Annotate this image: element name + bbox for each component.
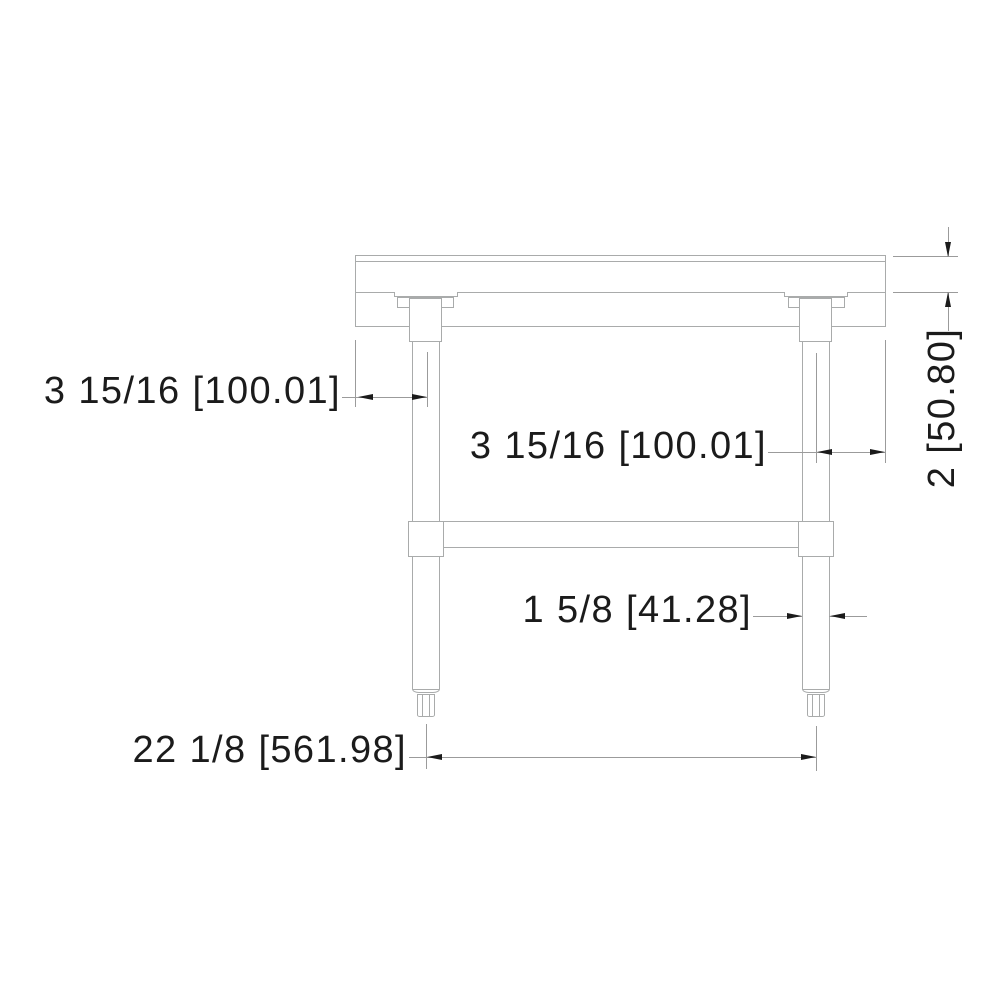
extension-line	[427, 352, 428, 407]
undershelf-bar	[444, 521, 798, 548]
left-undershelf-collar	[408, 521, 444, 557]
extension-line	[885, 340, 886, 463]
arrowhead-right-icon	[787, 613, 802, 619]
arrowhead-down-icon	[945, 242, 951, 257]
arrowhead-right-icon	[870, 449, 885, 455]
dimension-line	[409, 757, 816, 758]
extension-line	[426, 724, 427, 769]
extension-line	[816, 726, 817, 771]
arrowhead-up-icon	[945, 292, 951, 307]
dim-right-leg-offset-label: 3 15/16 [100.01]	[466, 424, 767, 468]
arrowhead-right-icon	[801, 754, 816, 760]
arrowhead-left-icon	[830, 613, 845, 619]
dim-left-leg-offset-label: 3 15/16 [100.01]	[40, 369, 341, 413]
right-foot-thread-line	[812, 695, 813, 716]
dim-leg-spacing-label: 22 1/8 [561.98]	[106, 728, 407, 772]
table-frame-line	[355, 292, 394, 293]
drawing-canvas: 3 15/16 [100.01] 3 15/16 [100.01] 2 [50.…	[0, 0, 1000, 1000]
right-leg-cap-line	[803, 689, 829, 690]
extension-line	[355, 340, 356, 407]
arrowhead-right-icon	[412, 394, 427, 400]
extension-line	[816, 353, 817, 463]
right-foot-thread-line	[819, 695, 820, 716]
right-leg-socket	[799, 298, 832, 342]
dim-leg-diameter-label: 1 5/8 [41.28]	[451, 588, 752, 632]
table-top-surface-line	[355, 261, 886, 262]
arrowhead-left-icon	[427, 754, 442, 760]
arrowhead-left-icon	[817, 449, 832, 455]
left-foot-thread-line	[422, 695, 423, 716]
arrowhead-left-icon	[358, 394, 373, 400]
left-leg-socket	[409, 298, 442, 342]
table-frame-line	[848, 292, 886, 293]
table-frame-line	[458, 292, 784, 293]
dim-top-thickness-label: 2 [50.80]	[920, 308, 964, 508]
left-foot-thread-line	[429, 695, 430, 716]
right-undershelf-collar	[798, 521, 834, 557]
left-leg-cap-line	[413, 689, 439, 690]
